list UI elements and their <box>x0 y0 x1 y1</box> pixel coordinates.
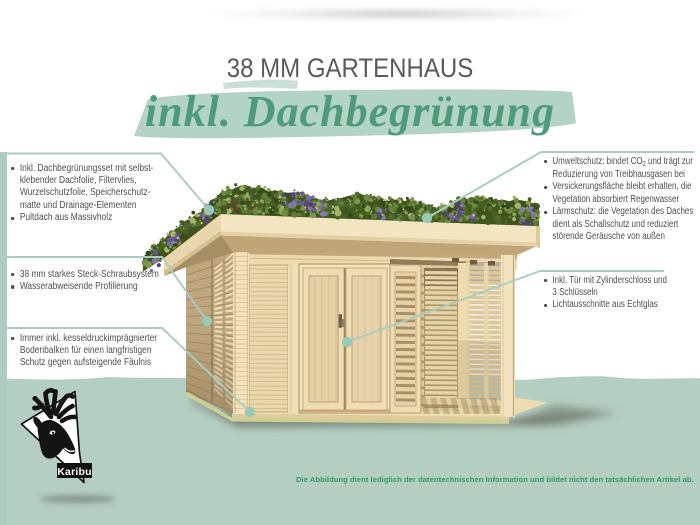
svg-text:Karibu: Karibu <box>57 466 91 478</box>
